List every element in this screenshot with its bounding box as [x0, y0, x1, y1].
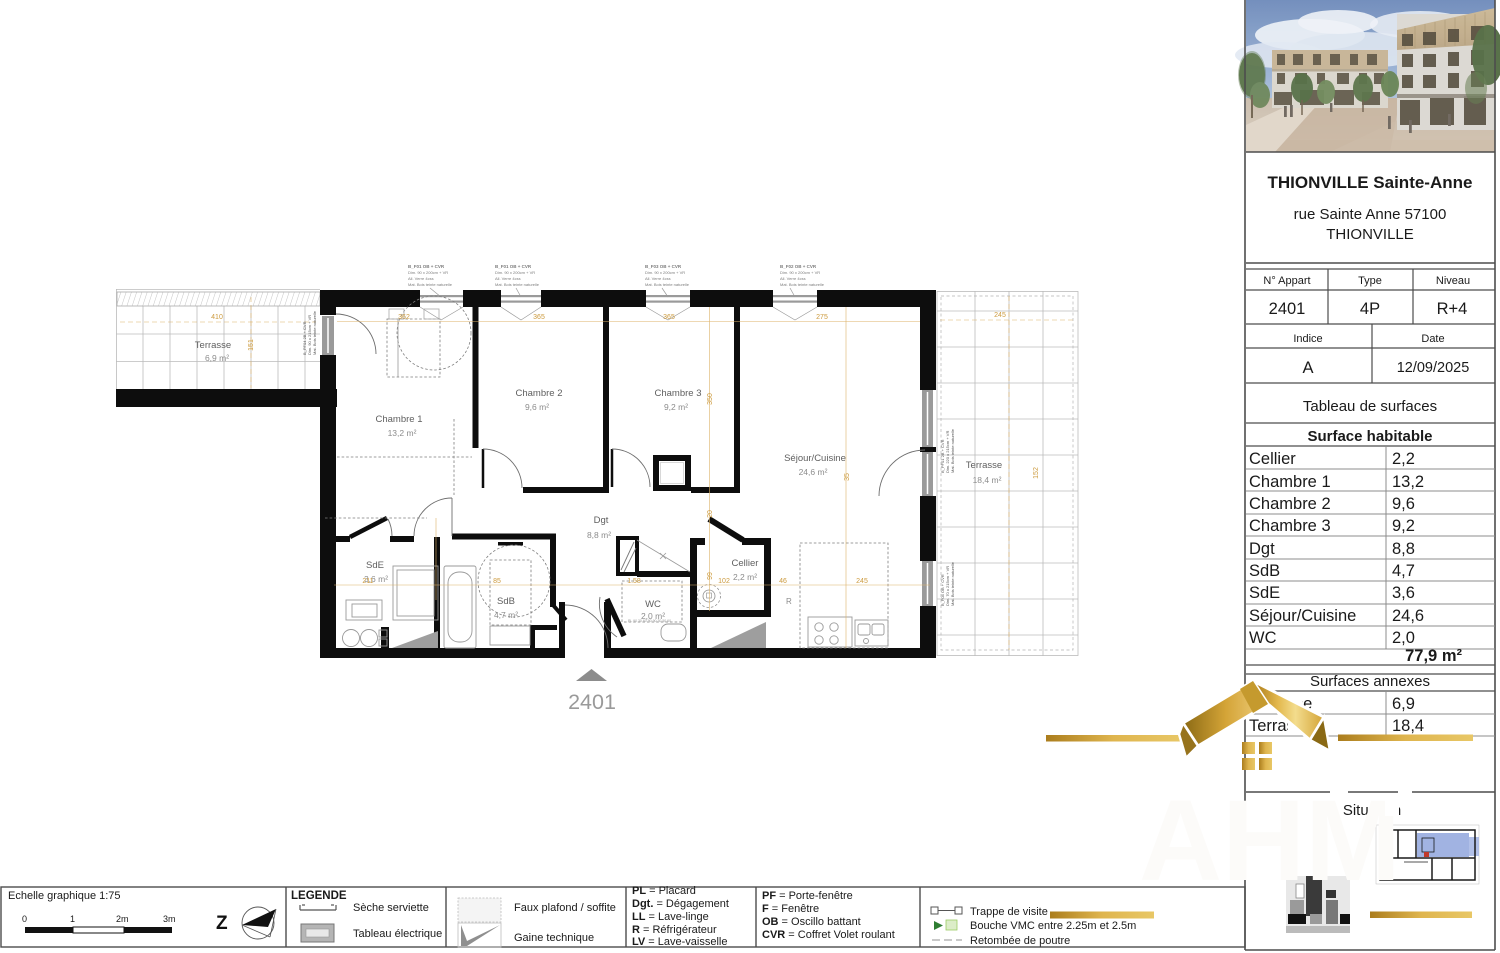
svg-text:Trappe de visite: Trappe de visite: [970, 906, 1048, 918]
svg-text:9,2: 9,2: [1392, 517, 1415, 535]
svg-text:SdE: SdE: [366, 560, 384, 571]
svg-text:Niveau: Niveau: [1436, 275, 1470, 287]
svg-text:365: 365: [663, 314, 675, 321]
svg-text:1: 1: [70, 914, 75, 924]
svg-text:99: 99: [707, 572, 714, 580]
svg-text:77,9 m²: 77,9 m²: [1405, 647, 1462, 665]
svg-text:13,2: 13,2: [1392, 473, 1424, 491]
svg-text:R: R: [786, 597, 792, 606]
svg-text:85: 85: [493, 578, 501, 585]
svg-text:THIONVILLE Sainte-Anne: THIONVILLE Sainte-Anne: [1268, 173, 1473, 192]
svg-text:350: 350: [707, 393, 714, 405]
svg-text:WC: WC: [1249, 629, 1277, 647]
svg-text:Surface habitable: Surface habitable: [1307, 428, 1432, 445]
svg-text:24,6 m²: 24,6 m²: [799, 467, 828, 477]
svg-text:B_F01 OB + CVR: B_F01 OB + CVR: [495, 264, 532, 269]
svg-text:B_F03 OB + CVR: B_F03 OB + CVR: [645, 264, 682, 269]
svg-text:All. Verre 4css: All. Verre 4css: [408, 276, 434, 281]
svg-text:46: 46: [779, 578, 787, 585]
svg-text:OB = Oscillo battant: OB = Oscillo battant: [762, 916, 861, 928]
svg-text:Cellier: Cellier: [1249, 450, 1296, 468]
svg-text:Echelle graphique 1:75: Echelle graphique 1:75: [8, 890, 121, 902]
svg-text:Mat. Bois teinte naturelle: Mat. Bois teinte naturelle: [495, 282, 540, 287]
svg-text:9,6 m²: 9,6 m²: [525, 402, 549, 412]
svg-text:9,2 m²: 9,2 m²: [664, 402, 688, 412]
svg-text:AHM: AHM: [1139, 777, 1401, 905]
svg-text:2,2: 2,2: [1392, 450, 1415, 468]
svg-text:Dgt: Dgt: [1249, 540, 1275, 558]
svg-text:SdB: SdB: [497, 596, 515, 607]
svg-text:4,7: 4,7: [1392, 562, 1415, 580]
svg-text:Surfaces annexes: Surfaces annexes: [1310, 673, 1430, 690]
svg-text:PL 90 30 60 90 90 30 50 60: PL 90 30 60 90 90 30 50 60: [628, 619, 671, 623]
svg-text:Dim. 90 x 200cm + VR: Dim. 90 x 200cm + VR: [495, 270, 535, 275]
svg-text:245: 245: [856, 578, 868, 585]
svg-text:Séjour/Cuisine: Séjour/Cuisine: [784, 453, 846, 464]
svg-text:24,6: 24,6: [1392, 607, 1424, 625]
svg-text:3,6: 3,6: [1392, 584, 1415, 602]
svg-text:211: 211: [362, 578, 373, 585]
svg-text:Chambre 1: Chambre 1: [376, 414, 423, 425]
svg-text:2401: 2401: [1269, 300, 1306, 318]
svg-text:18,4 m²: 18,4 m²: [973, 475, 1002, 485]
svg-text:Date: Date: [1421, 333, 1444, 345]
svg-text:8,8: 8,8: [1392, 540, 1415, 558]
svg-text:B_F02 OB + CVR: B_F02 OB + CVR: [780, 264, 817, 269]
svg-text:Dgt. = Dégagement: Dgt. = Dégagement: [632, 898, 729, 910]
svg-text:Chambre 3: Chambre 3: [1249, 517, 1331, 535]
svg-text:Tableau de surfaces: Tableau de surfaces: [1303, 398, 1437, 415]
svg-text:Mat. Bois teinte naturelle: Mat. Bois teinte naturelle: [312, 310, 317, 355]
svg-text:All. Verre 4css: All. Verre 4css: [780, 276, 806, 281]
svg-text:Indice: Indice: [1293, 333, 1322, 345]
svg-text:Dgt: Dgt: [594, 515, 609, 526]
svg-text:Cellier: Cellier: [732, 558, 759, 569]
svg-text:151: 151: [248, 339, 255, 351]
svg-text:Gaine technique: Gaine technique: [514, 932, 594, 944]
svg-text:Mat. Bois teinte naturelle: Mat. Bois teinte naturelle: [950, 428, 955, 473]
svg-text:365: 365: [533, 314, 545, 321]
svg-text:245: 245: [994, 312, 1006, 319]
svg-text:0: 0: [22, 914, 27, 924]
svg-text:R+4: R+4: [1437, 300, 1468, 318]
svg-text:N° Appart: N° Appart: [1263, 275, 1310, 287]
svg-text:Chambre 3: Chambre 3: [655, 388, 702, 399]
svg-text:Retombée de poutre: Retombée de poutre: [970, 935, 1070, 947]
svg-text:PL = Placard: PL = Placard: [632, 885, 696, 897]
svg-text:Dim. 90 x 200cm + VR: Dim. 90 x 200cm + VR: [645, 270, 685, 275]
svg-text:SdB: SdB: [1249, 562, 1280, 580]
svg-text:1.58: 1.58: [627, 578, 641, 585]
svg-text:Terrasse: Terrasse: [966, 460, 1002, 471]
svg-text:6,9 m²: 6,9 m²: [205, 353, 229, 363]
svg-text:F = Fenêtre: F = Fenêtre: [762, 903, 819, 915]
svg-text:Mat. Bois teinte naturelle: Mat. Bois teinte naturelle: [408, 282, 453, 287]
svg-text:Z: Z: [216, 913, 228, 934]
svg-text:All. Verre 4css: All. Verre 4css: [495, 276, 521, 281]
svg-text:8,8 m²: 8,8 m²: [587, 530, 611, 540]
svg-text:102: 102: [718, 578, 730, 585]
svg-text:THIONVILLE: THIONVILLE: [1326, 226, 1414, 243]
svg-text:Chambre 2: Chambre 2: [516, 388, 563, 399]
svg-text:12/09/2025: 12/09/2025: [1397, 360, 1470, 376]
svg-text:Chambre 2: Chambre 2: [1249, 495, 1331, 513]
svg-text:Dim. 90 x 200cm + VR: Dim. 90 x 200cm + VR: [780, 270, 820, 275]
svg-text:R = Réfrigérateur: R = Réfrigérateur: [632, 924, 717, 936]
svg-text:Séjour/Cuisine: Séjour/Cuisine: [1249, 607, 1356, 625]
svg-text:6,9: 6,9: [1392, 695, 1415, 713]
svg-text:Chambre 1: Chambre 1: [1249, 473, 1331, 491]
svg-text:20: 20: [707, 510, 714, 518]
svg-text:PF = Porte-fenêtre: PF = Porte-fenêtre: [762, 890, 853, 902]
svg-text:4P: 4P: [1360, 300, 1380, 318]
svg-text:Mat. Bois teinte naturelle: Mat. Bois teinte naturelle: [780, 282, 825, 287]
svg-text:Bouche VMC entre 2.25m et 2.5m: Bouche VMC entre 2.25m et 2.5m: [970, 920, 1136, 932]
svg-text:275: 275: [816, 314, 828, 321]
svg-text:LL = Lave-linge: LL = Lave-linge: [632, 911, 709, 923]
svg-text:WC: WC: [645, 599, 661, 610]
svg-text:rue Sainte Anne 57100: rue Sainte Anne 57100: [1294, 206, 1447, 223]
svg-text:35: 35: [844, 473, 851, 481]
svg-text:B_F01 OB + CVR: B_F01 OB + CVR: [408, 264, 445, 269]
svg-text:362: 362: [398, 314, 410, 321]
svg-text:Tableau électrique: Tableau électrique: [353, 928, 442, 940]
svg-text:CVR = Coffret Volet roulant: CVR = Coffret Volet roulant: [762, 929, 895, 941]
svg-text:4,7 m²: 4,7 m²: [494, 610, 518, 620]
svg-text:SdE: SdE: [1249, 584, 1280, 602]
svg-text:2,0: 2,0: [1392, 629, 1415, 647]
svg-text:3m: 3m: [163, 914, 176, 924]
svg-text:LEGENDE: LEGENDE: [291, 890, 347, 902]
svg-text:LV = Lave-vaisselle: LV = Lave-vaisselle: [632, 936, 728, 948]
svg-text:All. Verre 4css: All. Verre 4css: [645, 276, 671, 281]
svg-text:410: 410: [211, 314, 223, 321]
svg-text:152: 152: [1033, 467, 1040, 479]
svg-text:18,4: 18,4: [1392, 717, 1424, 735]
svg-text:Terrasse: Terrasse: [195, 340, 231, 351]
svg-text:9,6: 9,6: [1392, 495, 1415, 513]
svg-text:Mat. Bois teinte naturelle: Mat. Bois teinte naturelle: [645, 282, 690, 287]
svg-text:13,2 m²: 13,2 m²: [388, 428, 417, 438]
svg-text:Sèche serviette: Sèche serviette: [353, 902, 429, 914]
svg-text:2m: 2m: [116, 914, 129, 924]
svg-text:2401: 2401: [568, 690, 616, 714]
svg-text:Mat. Bois teinte naturelle: Mat. Bois teinte naturelle: [950, 561, 955, 606]
svg-text:Dim. 90 x 200cm + VR: Dim. 90 x 200cm + VR: [408, 270, 448, 275]
svg-text:A: A: [1302, 359, 1313, 377]
svg-text:Type: Type: [1358, 275, 1382, 287]
svg-text:2,2 m²: 2,2 m²: [733, 572, 757, 582]
svg-text:Faux plafond / soffite: Faux plafond / soffite: [514, 902, 616, 914]
